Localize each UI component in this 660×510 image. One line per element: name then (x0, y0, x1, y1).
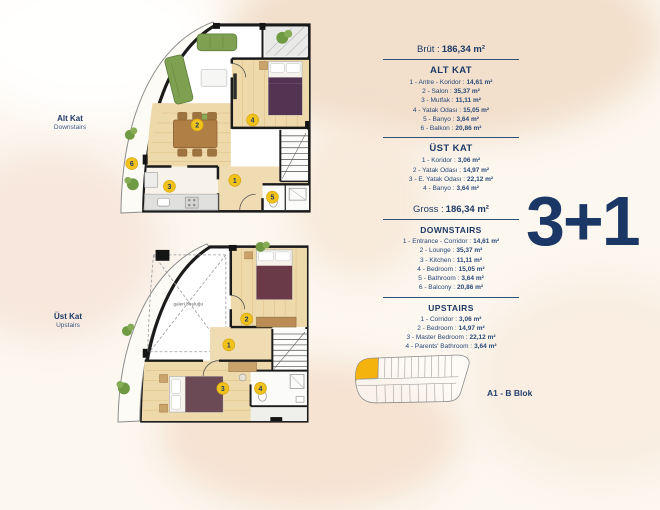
area-item-label: 6 - Balcony : (419, 284, 455, 291)
area-item-label: 1 - Koridor : (422, 157, 456, 164)
area-item-label: 3 - Kitchen : (420, 257, 455, 264)
area-item: 2 - Bedroom :14,97 m² (417, 324, 484, 333)
area-item: 1 - Koridor :3,06 m² (422, 156, 480, 165)
area-item-label: 3 - Mutfak : (421, 97, 454, 104)
area-item-label: 6 - Balkon : (421, 125, 454, 132)
area-item-value: 14,97 m² (463, 167, 489, 174)
sofa (197, 34, 237, 51)
section-title-alt-kat: ALT KAT (430, 65, 472, 76)
divider (383, 219, 519, 220)
area-item-value: 15,05 m² (459, 266, 485, 273)
area-item: 1 - Antre - Koridor :14,61 m² (410, 78, 493, 87)
area-item-label: 2 - Bedroom : (417, 325, 456, 332)
area-item-value: 15,05 m² (463, 107, 489, 114)
area-item-value: 22,12 m² (467, 176, 493, 183)
block-footprint-diagram (346, 350, 480, 408)
area-item-label: 2 - Salon : (422, 88, 452, 95)
area-info-panel: Brüt :186,34 m² ALT KAT 1 - Antre - Kori… (383, 44, 519, 351)
area-item-label: 2 - Yatak Odası : (413, 167, 461, 174)
area-item: 1 - Corridor :3,06 m² (421, 315, 482, 324)
area-item: 2 - Lounge :35,37 m² (420, 246, 483, 255)
area-item: 6 - Balkon :20,86 m² (421, 124, 482, 133)
area-item: 5 - Bathroom :3,64 m² (418, 274, 484, 283)
area-item-value: 3,64 m² (457, 185, 479, 192)
area-item-label: 4 - Banyo : (423, 185, 454, 192)
badge-4: 4 (259, 386, 263, 393)
bathroom (251, 371, 307, 421)
area-item: 2 - Yatak Odası :14,97 m² (413, 166, 489, 175)
badge-5: 5 (270, 195, 274, 202)
area-item-value: 20,86 m² (457, 284, 483, 291)
badge-3: 3 (221, 386, 225, 393)
gross-label: Gross : (413, 204, 444, 215)
badge-1: 1 (227, 342, 231, 349)
area-item-value: 11,11 m² (457, 257, 482, 264)
area-item-label: 2 - Lounge : (420, 247, 455, 254)
badge-2: 2 (195, 122, 199, 129)
area-item: 2 - Salon :35,37 m² (422, 87, 480, 96)
brut-label: Brüt : (417, 44, 440, 55)
area-item-value: 3,06 m² (459, 316, 481, 323)
dining-set (173, 112, 217, 157)
area-item: 4 - Bedroom :15,05 m² (417, 265, 484, 274)
area-item-label: 5 - Bathroom : (418, 275, 459, 282)
area-item-value: 14,61 m² (473, 238, 499, 245)
brut-value: 186,34 m² (442, 44, 485, 55)
area-item-value: 14,61 m² (466, 79, 492, 86)
section-title-ust-kat: ÜST KAT (429, 143, 472, 154)
badge-2: 2 (245, 317, 249, 324)
area-item-label: 1 - Corridor : (421, 316, 457, 323)
divider (383, 137, 519, 138)
divider (383, 59, 519, 60)
ust-kat-title: Üst Kat (33, 312, 103, 321)
divider (383, 297, 519, 298)
area-item-label: 3 - Master Bedroom : (406, 334, 467, 341)
gross-value: 186,34 m² (446, 204, 489, 215)
void-label: galeri boşluğu (173, 301, 203, 306)
area-item-value: 3,64 m² (461, 275, 483, 282)
area-item-label: 4 - Yatak Odası : (413, 107, 461, 114)
alt-kat-subtitle: Downstairs (35, 124, 105, 131)
area-item-value: 3,64 m² (457, 116, 479, 123)
alt-kat-title: Alt Kat (35, 114, 105, 123)
ust-kat-subtitle: Upstairs (33, 322, 103, 329)
area-item: 3 - Mutfak :11,11 m² (421, 96, 481, 105)
highlighted-unit (355, 358, 378, 382)
area-item-value: 35,37 m² (454, 88, 480, 95)
area-item-value: 35,37 m² (456, 247, 482, 254)
area-item-label: 1 - Entrance - Corridor : (403, 238, 471, 245)
area-item-label: 5 - Banyo : (423, 116, 454, 123)
unit-type: 3+1 (526, 186, 639, 256)
area-item: 1 - Entrance - Corridor :14,61 m² (403, 237, 499, 246)
alt-kat-label: Alt Kat Downstairs (35, 114, 105, 131)
badge-3: 3 (168, 184, 172, 191)
brochure-page: { "page": { "unit_type": "3+1", "block_l… (0, 0, 660, 439)
ust-kat-floor-plan: galeri boşluğu (112, 240, 310, 424)
badge-6: 6 (130, 161, 134, 168)
gross-total: Gross :186,34 m² (413, 204, 489, 215)
area-item: 6 - Balcony :20,86 m² (419, 283, 483, 292)
area-item: 3 - Kitchen :11,11 m² (420, 256, 482, 265)
area-item: 3 - E. Yatak Odası :22,12 m² (409, 175, 493, 184)
ust-kat-label: Üst Kat Upstairs (33, 312, 103, 329)
area-item-label: 3 - E. Yatak Odası : (409, 176, 465, 183)
tv-unit (233, 73, 236, 99)
badge-1: 1 (233, 178, 237, 185)
area-item-value: 11,11 m² (456, 97, 481, 104)
master-bed (160, 375, 223, 413)
alt-kat-floor-plan: 2 4 6 3 1 5 (114, 18, 312, 216)
area-item-value: 3,06 m² (458, 157, 480, 164)
corridor-floor (210, 327, 272, 361)
section-title-upstairs: UPSTAIRS (428, 303, 474, 313)
area-item: 4 - Banyo :3,64 m² (423, 184, 479, 193)
area-item-value: 20,86 m² (455, 125, 481, 132)
area-item-value: 14,97 m² (459, 325, 485, 332)
section-title-downstairs: DOWNSTAIRS (420, 225, 481, 235)
badge-4: 4 (251, 117, 255, 124)
area-item-value: 22,12 m² (470, 334, 496, 341)
stairs (280, 130, 308, 181)
area-item-label: 1 - Antre - Koridor : (410, 79, 465, 86)
area-item-label: 4 - Bedroom : (417, 266, 456, 273)
area-item: 5 - Banyo :3,64 m² (423, 115, 479, 124)
area-item: 3 - Master Bedroom :22,12 m² (406, 333, 495, 342)
brut-total: Brüt :186,34 m² (417, 44, 485, 55)
coffee-table (201, 69, 227, 86)
area-item: 4 - Yatak Odası :15,05 m² (413, 106, 489, 115)
block-label: A1 - B Blok (487, 388, 532, 398)
stairs (272, 329, 307, 371)
